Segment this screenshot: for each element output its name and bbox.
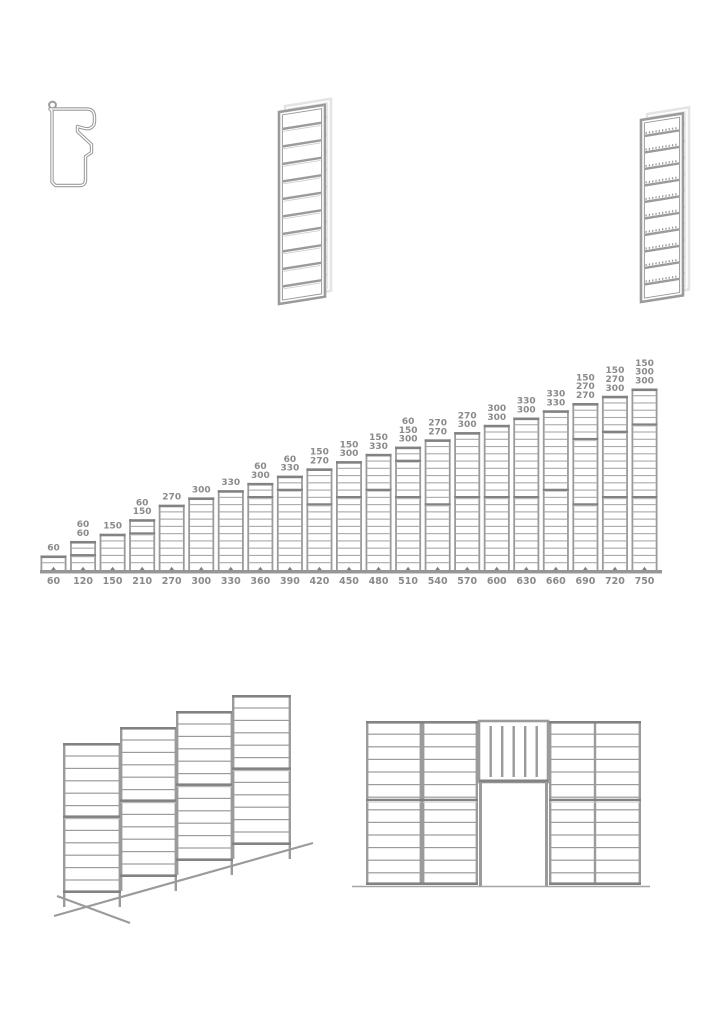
axis-label: 690 [575, 576, 595, 587]
axis-label: 570 [457, 576, 477, 587]
stack-label: 300 [635, 377, 654, 387]
stack-label: 330 [369, 442, 388, 452]
axis-label: 390 [280, 576, 300, 587]
height-panel: 540270270 [425, 419, 451, 587]
stack-label: 300 [192, 485, 211, 495]
stack-label: 300 [399, 435, 418, 445]
axis-label: 630 [516, 576, 536, 587]
axis-label: 360 [250, 576, 270, 587]
catalog-page: 6060120606015015021060150270270300300330… [0, 0, 724, 1024]
height-panel: 36060300 [247, 462, 273, 587]
axis-label: 660 [546, 576, 566, 587]
profile-cross-section-drawing [49, 102, 94, 186]
stack-label: 300 [458, 420, 477, 430]
height-panel: 39060330 [277, 455, 303, 587]
height-panel: 450150300 [336, 440, 362, 587]
ladder-panel-3d-right [641, 107, 689, 302]
axis-label: 60 [47, 576, 61, 587]
stack-label: 300 [517, 406, 536, 416]
gate-wall-diagram [352, 721, 650, 887]
stack-label: 300 [606, 384, 625, 394]
stack-label: 60 [47, 543, 60, 553]
slope-installation-diagram [54, 695, 313, 923]
height-range-chart: 6060120606015015021060150270270300300330… [40, 359, 662, 587]
stack-label: 150 [133, 507, 152, 517]
stack-label: 270 [162, 493, 181, 503]
height-panel: 420150270 [306, 448, 332, 587]
profile-outline-inner [50, 109, 95, 186]
stack-label: 330 [221, 478, 240, 488]
height-panel: 6060 [41, 543, 67, 587]
stack-label: 60 [77, 529, 90, 539]
height-panel: 660330330 [543, 389, 569, 587]
stack-label: 330 [281, 464, 300, 474]
axis-label: 300 [191, 576, 211, 587]
height-panel: 600300300 [484, 404, 510, 587]
height-panel: 750150300300 [632, 359, 658, 587]
stack-label: 300 [251, 471, 270, 481]
ladder-panel-3d-left [279, 99, 331, 304]
stack-label: 330 [546, 398, 565, 408]
profile-outline [50, 109, 95, 186]
axis-label: 510 [398, 576, 418, 587]
axis-label: 420 [310, 576, 330, 587]
axis-label: 600 [487, 576, 507, 587]
scene: 6060120606015015021060150270270300300330… [0, 0, 724, 1024]
height-panel: 720150270300 [602, 366, 628, 587]
stack-label: 300 [487, 413, 506, 423]
height-panel: 570270300 [454, 411, 480, 587]
height-panel: 690150270270 [572, 373, 598, 587]
height-panel: 480150330 [366, 433, 392, 587]
stack-label: 300 [340, 449, 359, 459]
axis-label: 720 [605, 576, 625, 587]
axis-label: 120 [73, 576, 93, 587]
axis-label: 210 [132, 576, 152, 587]
stack-label: 270 [576, 391, 595, 401]
axis-label: 270 [162, 576, 182, 587]
stack-label: 270 [310, 456, 329, 466]
height-panel: 630330300 [513, 397, 539, 587]
axis-label: 330 [221, 576, 241, 587]
axis-label: 450 [339, 576, 359, 587]
axis-label: 540 [428, 576, 448, 587]
height-panel: 1206060 [70, 520, 96, 587]
height-panel: 150150 [100, 522, 126, 587]
height-panel: 51060150300 [395, 417, 421, 587]
axis-label: 150 [103, 576, 123, 587]
axis-label: 480 [369, 576, 389, 587]
stack-label: 150 [103, 522, 122, 532]
stack-label: 270 [428, 427, 447, 437]
axis-label: 750 [635, 576, 655, 587]
